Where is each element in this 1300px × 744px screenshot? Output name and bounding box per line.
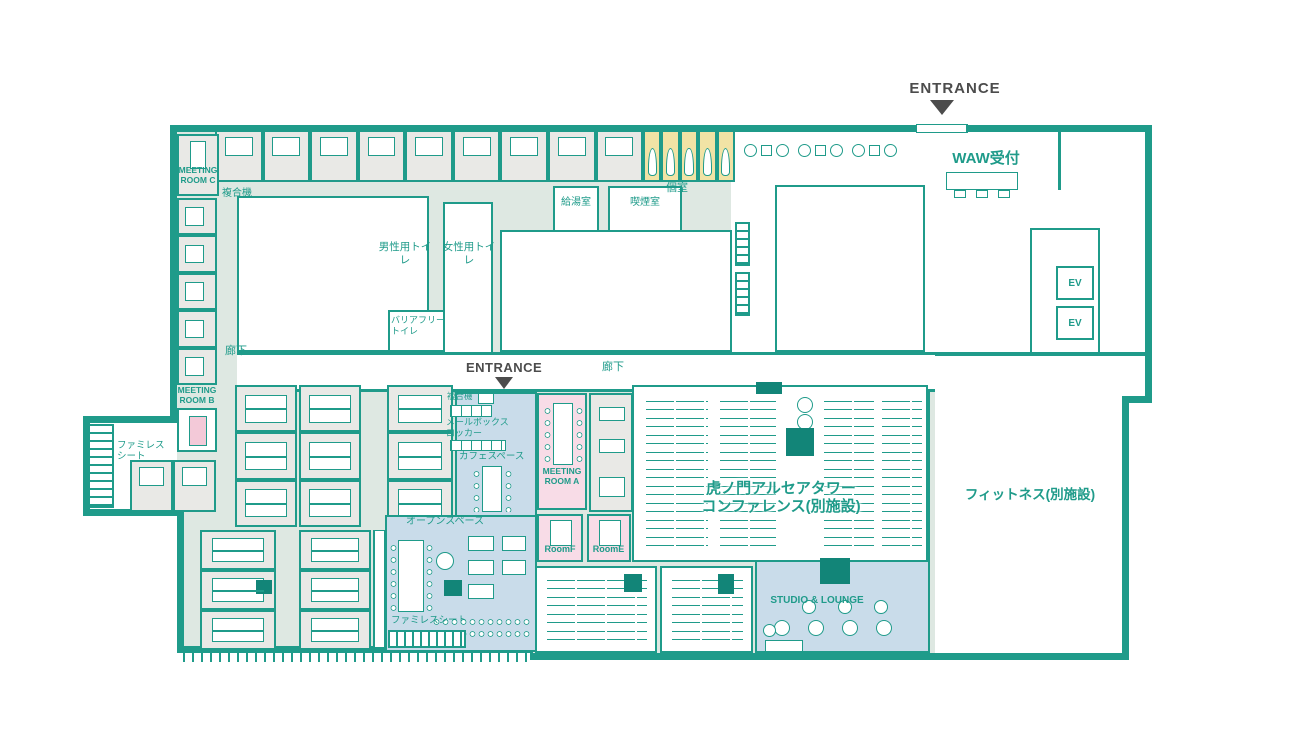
entrance-center-arrow xyxy=(495,377,513,389)
meeting-room-a xyxy=(537,393,587,510)
booth-room-row xyxy=(130,460,216,512)
lounge-chair xyxy=(798,144,811,157)
pillar xyxy=(718,574,734,594)
lounge-table xyxy=(815,145,826,156)
pillar xyxy=(624,574,642,592)
desk-rows xyxy=(822,401,874,549)
conference-label: 虎ノ門アルセアタワー コンファレンス(別施設) xyxy=(650,480,912,516)
meeting-room-b-label: MEETING ROOM B xyxy=(171,385,223,405)
cafe-space-label: カフェスペース xyxy=(459,451,535,462)
room-f xyxy=(537,514,583,562)
small-table xyxy=(468,560,494,575)
cafe-chairs xyxy=(504,468,512,512)
entrance-top-label: ENTRANCE xyxy=(896,80,1014,98)
office-room xyxy=(299,570,371,610)
office-room xyxy=(235,432,297,479)
lounge-chair xyxy=(763,624,776,637)
elevator-2: EV xyxy=(1056,306,1094,340)
office-room xyxy=(235,385,297,432)
pillar xyxy=(786,428,814,456)
small-table xyxy=(468,536,494,551)
round-table xyxy=(842,620,858,636)
room-e xyxy=(587,514,631,562)
reception-desk xyxy=(946,172,1018,190)
small-table xyxy=(502,536,526,551)
cafe-table xyxy=(482,466,502,512)
desk-rows xyxy=(880,401,922,549)
pillar xyxy=(820,558,850,584)
chair xyxy=(797,397,813,413)
cafe-chairs xyxy=(472,468,480,512)
private-booth xyxy=(717,130,735,182)
open-space-chairs xyxy=(425,542,433,612)
lounge-chair xyxy=(744,144,757,157)
kitchenette-room xyxy=(553,186,599,232)
chairs xyxy=(543,405,551,465)
wall-segment xyxy=(1145,125,1152,403)
corridor-left-label: 廊下 xyxy=(220,345,252,358)
table xyxy=(189,416,207,446)
wall-segment xyxy=(177,509,184,653)
private-booth xyxy=(661,130,679,182)
reception-desk-leg xyxy=(998,190,1010,198)
entrance-center-label: ENTRANCE xyxy=(466,360,542,376)
round-table xyxy=(808,620,824,636)
private-booth xyxy=(698,130,716,182)
famiresu-bottom-label: ファミレスシート xyxy=(391,615,471,626)
reception-desk-leg xyxy=(976,190,988,198)
private-booth-label: 個室 xyxy=(654,182,700,195)
office-block xyxy=(299,385,361,527)
office-room xyxy=(387,385,453,432)
office-room xyxy=(299,432,361,479)
lounge-chair xyxy=(776,144,789,157)
pillar xyxy=(256,580,272,594)
famiresu-booth xyxy=(388,630,466,648)
office-room xyxy=(299,480,361,527)
table xyxy=(599,477,625,497)
office-room xyxy=(299,385,361,432)
fitness-label: フィットネス(別施設) xyxy=(946,487,1114,503)
pillar xyxy=(756,382,782,394)
reception-desk-leg xyxy=(954,190,966,198)
pillar xyxy=(444,580,462,596)
office-booth xyxy=(548,130,596,182)
wall-segment xyxy=(530,653,1129,660)
mens-toilet-label: 男性用トイレ xyxy=(374,241,436,266)
famiresu-left-label: ファミレス シート xyxy=(117,440,177,463)
event-room xyxy=(775,185,925,352)
wall-segment xyxy=(1122,396,1129,660)
private-booth-row xyxy=(643,130,735,182)
table xyxy=(599,407,625,421)
round-table xyxy=(876,620,892,636)
wall-segment xyxy=(966,125,1152,132)
open-space-label: オープンスペース xyxy=(406,516,504,528)
meeting-room-a-label: MEETING ROOM A xyxy=(537,466,587,486)
office-booth xyxy=(310,130,358,182)
meeting-room-c-label: MEETING ROOM C xyxy=(169,165,227,185)
office-room xyxy=(235,480,297,527)
office-booth xyxy=(405,130,453,182)
wall-segment xyxy=(83,416,180,423)
office-booth xyxy=(263,130,311,182)
private-booth xyxy=(680,130,698,182)
womens-toilet-room xyxy=(443,202,493,354)
office-room xyxy=(299,530,371,570)
sofa xyxy=(735,222,750,266)
round-table xyxy=(436,552,454,570)
exterior-hatching xyxy=(183,653,533,662)
office-room xyxy=(299,610,371,650)
elevator-label: EV xyxy=(1068,278,1081,289)
room-f-label: RoomF xyxy=(537,544,583,555)
open-space-table xyxy=(398,540,424,612)
office-room xyxy=(177,198,217,235)
office-room xyxy=(177,310,217,347)
wall-segment xyxy=(1058,132,1061,190)
office-block xyxy=(299,530,371,650)
left-office-column xyxy=(177,198,217,385)
office-block xyxy=(387,385,453,527)
sofa xyxy=(735,272,750,316)
desk-rows xyxy=(718,401,776,549)
counter xyxy=(765,640,803,652)
corridor-center-label: 廊下 xyxy=(597,361,629,374)
phone-booth-row xyxy=(215,130,643,182)
chairs xyxy=(575,405,583,465)
office-booth xyxy=(596,130,644,182)
office-booth xyxy=(130,460,173,512)
mailbox-locker-icon xyxy=(450,405,492,417)
famiresu-booth xyxy=(88,424,114,508)
kitchenette-label: 給湯室 xyxy=(555,197,597,209)
accessible-toilet-label: バリアフリー トイレ xyxy=(391,315,447,337)
conference-area xyxy=(632,385,928,562)
round-table xyxy=(774,620,790,636)
desk-rows xyxy=(644,401,708,549)
office-room xyxy=(200,530,276,570)
table xyxy=(553,403,573,465)
table xyxy=(599,439,625,453)
open-space-chairs xyxy=(389,542,397,612)
room-e-label: RoomE xyxy=(586,544,631,555)
entrance-top-arrow xyxy=(930,100,954,115)
floor-plan: EV EV xyxy=(0,0,1300,744)
office-booth xyxy=(453,130,501,182)
private-booth xyxy=(643,130,661,182)
lounge-table xyxy=(869,145,880,156)
smoking-room-label: 喫煙室 xyxy=(616,197,674,209)
copier-top-label: 複合機 xyxy=(222,188,270,200)
reception-label: WAW受付 xyxy=(942,150,1030,168)
meeting-room-b xyxy=(177,408,217,452)
round-table xyxy=(874,600,888,614)
office-room xyxy=(589,393,633,512)
lounge-chair xyxy=(852,144,865,157)
office-booth xyxy=(500,130,548,182)
elevator-label: EV xyxy=(1068,318,1081,329)
office-room xyxy=(177,235,217,272)
office-booth xyxy=(173,460,216,512)
office-room xyxy=(177,348,217,385)
table xyxy=(550,520,572,546)
lounge-table xyxy=(761,145,772,156)
central-room xyxy=(500,230,732,352)
elevator-1: EV xyxy=(1056,266,1094,300)
studio-lounge-label: STUDIO & LOUNGE xyxy=(758,595,876,607)
right-wing-base xyxy=(935,132,1152,653)
locker-column xyxy=(373,530,385,648)
copier-center-label: 複合機 xyxy=(447,391,483,401)
womens-toilet-label: 女性用トイレ xyxy=(438,241,500,266)
table xyxy=(599,520,621,546)
small-table xyxy=(468,584,494,599)
seminar-room xyxy=(660,566,753,653)
small-table xyxy=(502,560,526,575)
lounge-chair xyxy=(830,144,843,157)
office-room xyxy=(387,432,453,479)
office-block xyxy=(235,385,297,527)
lounge-chair xyxy=(884,144,897,157)
office-room xyxy=(177,273,217,310)
office-room xyxy=(200,610,276,650)
office-booth xyxy=(358,130,406,182)
entrance-door-top xyxy=(916,124,968,133)
mailbox-locker-label: メールボックス ロッカー xyxy=(446,417,522,439)
mailbox-locker-icon xyxy=(450,440,506,451)
